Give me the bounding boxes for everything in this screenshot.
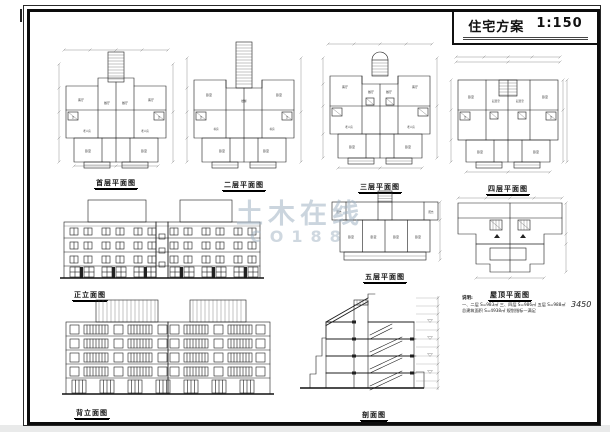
plan-second-floor: 卧室 卧室 楼梯 卫 卫 书房 书房 卧室 卧室 二层平面图 [182, 38, 306, 191]
room-label: 起居室 [492, 99, 500, 103]
room-label: 客厅 [412, 84, 418, 89]
room-label: 客厅 [148, 97, 154, 102]
plan-second-floor-caption: 二层平面图 [182, 174, 306, 191]
room-label: 卧室 [263, 148, 269, 153]
sheet-edge [0, 425, 610, 432]
front-elevation-drawing [58, 198, 266, 282]
roof-plan-drawing [450, 194, 570, 282]
room-label: 卧室 [393, 234, 399, 239]
rear-elevation-caption: 背立面图 [60, 402, 278, 419]
room-label: 卧室 [206, 92, 212, 97]
building-section-drawing [298, 292, 450, 402]
room-label: 老人房 [345, 125, 353, 129]
room-label: 阳台 [428, 210, 434, 214]
room-label: 卧室 [405, 144, 411, 149]
room-label: 餐厅 [386, 89, 392, 94]
building-section-caption: 剖面图 [298, 404, 450, 421]
fold-mark [20, 9, 22, 22]
room-label: 卧室 [415, 234, 421, 239]
plan-fifth-floor: 阳台 阳台 卧室 卧室 卧室 卧室 五层平面图 [326, 190, 444, 283]
plan-third-floor-drawing: 客厅 客厅 餐厅 餐厅 老人房 老人房 卧室 卧室 [318, 38, 442, 174]
room-label: 起居室 [516, 99, 524, 103]
room-label: 老人房 [141, 129, 149, 133]
room-label: 卧室 [542, 94, 548, 99]
dimension-3450: 3450 [571, 300, 591, 309]
room-label: 卫 [158, 117, 161, 120]
room-label: 餐厅 [104, 100, 110, 105]
roof-plan: 屋顶平面图 [450, 194, 570, 301]
room-label: 卫 [286, 117, 289, 120]
room-label: 卧室 [349, 144, 355, 149]
room-label: 餐厅 [122, 100, 128, 105]
notes-block: 说明: 一、二层 S=983㎡ 三、四层 S=986㎡ 五层 S=988㎡ 总建… [462, 296, 568, 313]
notes-line-1: 一、二层 S=983㎡ 三、四层 S=986㎡ 五层 S=988㎡ [462, 302, 568, 308]
room-label: 卧室 [370, 234, 376, 239]
title-block: 住宅方案 1:150 [452, 12, 597, 45]
sheet-title: 住宅方案 [468, 16, 524, 35]
room-label: 卫 [72, 117, 75, 120]
sheet-scale: 1:150 [536, 16, 582, 35]
room-label: 书房 [269, 127, 275, 131]
room-label: 卧室 [468, 94, 474, 99]
plan-fourth-floor-drawing: 卧室 卧室 起居室 起居室 卫 卫 卧室 卧室 [446, 52, 570, 176]
room-label: 卧室 [348, 234, 354, 239]
room-label: 卫 [464, 117, 467, 120]
room-label: 卧室 [477, 149, 483, 154]
plan-first-floor-drawing: 客厅 客厅 餐厅 餐厅 卫 卫 老人房 老人房 卧室 卧室 [54, 44, 178, 170]
room-label: 卧室 [533, 149, 539, 154]
room-label: 老人房 [83, 129, 91, 133]
room-label: 老人房 [407, 125, 415, 129]
plan-first-floor: 客厅 客厅 餐厅 餐厅 卫 卫 老人房 老人房 卧室 卧室 首层平面图 [54, 44, 178, 189]
plan-fourth-floor-caption: 四层平面图 [446, 178, 570, 195]
room-label: 卫 [550, 117, 553, 120]
room-label: 书房 [213, 127, 219, 131]
plan-fourth-floor: 卧室 卧室 起居室 起居室 卫 卫 卧室 卧室 四层平面图 [446, 52, 570, 195]
rear-elevation-drawing [60, 298, 278, 400]
room-label: 卧室 [276, 92, 282, 97]
room-label: 餐厅 [368, 89, 374, 94]
notes-line-2: 总建筑面积 S=4938㎡ 规划指标—满足 [462, 308, 568, 314]
room-label: 客厅 [342, 84, 348, 89]
room-label: 卧室 [85, 148, 91, 153]
plan-first-floor-caption: 首层平面图 [54, 172, 178, 189]
plan-fifth-floor-drawing: 阳台 阳台 卧室 卧室 卧室 卧室 [326, 190, 444, 264]
room-label: 阳台 [336, 210, 342, 214]
plan-third-floor: 客厅 客厅 餐厅 餐厅 老人房 老人房 卧室 卧室 三层平面图 [318, 38, 442, 193]
room-label: 客厅 [78, 97, 84, 102]
room-label: 卧室 [141, 148, 147, 153]
plan-fifth-floor-caption: 五层平面图 [326, 266, 444, 283]
room-label: 卧室 [219, 148, 225, 153]
building-section: 剖面图 [298, 292, 450, 421]
rear-elevation: 背立面图 [60, 298, 278, 419]
plan-second-floor-drawing: 卧室 卧室 楼梯 卫 卫 书房 书房 卧室 卧室 [182, 38, 306, 172]
room-label: 楼梯 [241, 99, 247, 103]
room-label: 卫 [200, 117, 203, 120]
front-elevation: 正立面图 [58, 198, 266, 301]
